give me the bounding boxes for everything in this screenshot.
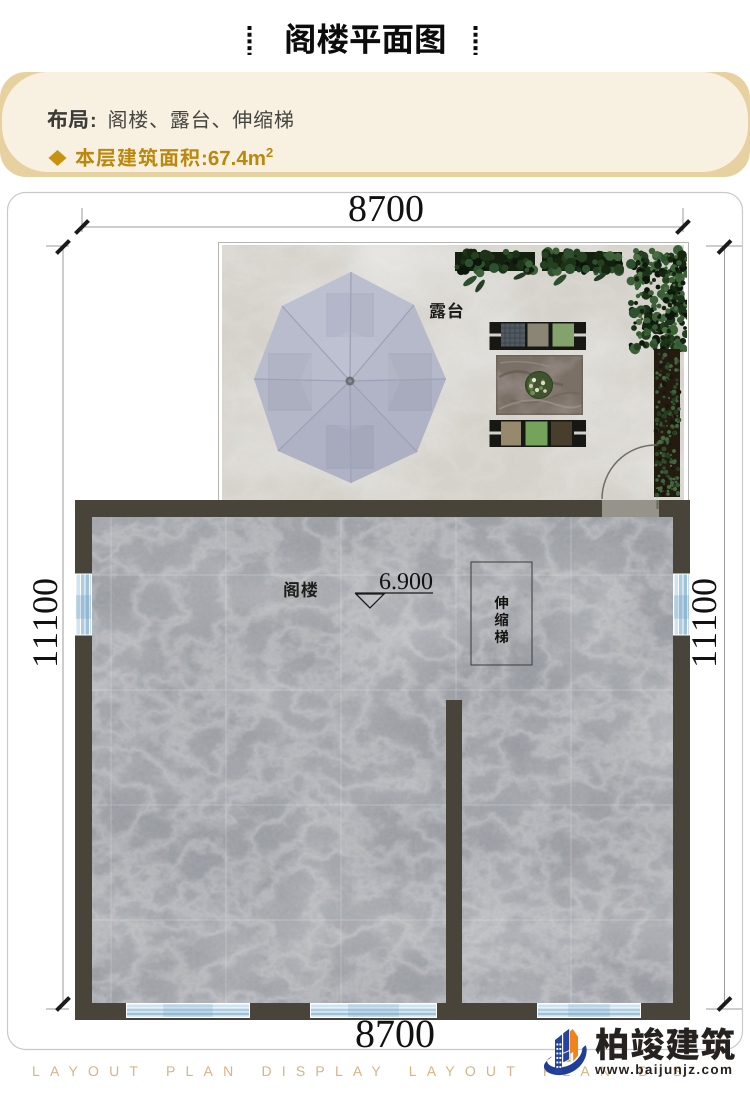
svg-text:www.baijunjz.com: www.baijunjz.com: [594, 1062, 732, 1077]
svg-text:2: 2: [266, 145, 273, 160]
svg-text::: :: [90, 110, 97, 132]
svg-text::67.4m: :67.4m: [201, 147, 266, 170]
svg-text:LAYOUT PLAN DISPLAY LAYOUT PLA: LAYOUT PLAN DISPLAY LAYOUT PLAN DIS: [32, 1063, 692, 1079]
